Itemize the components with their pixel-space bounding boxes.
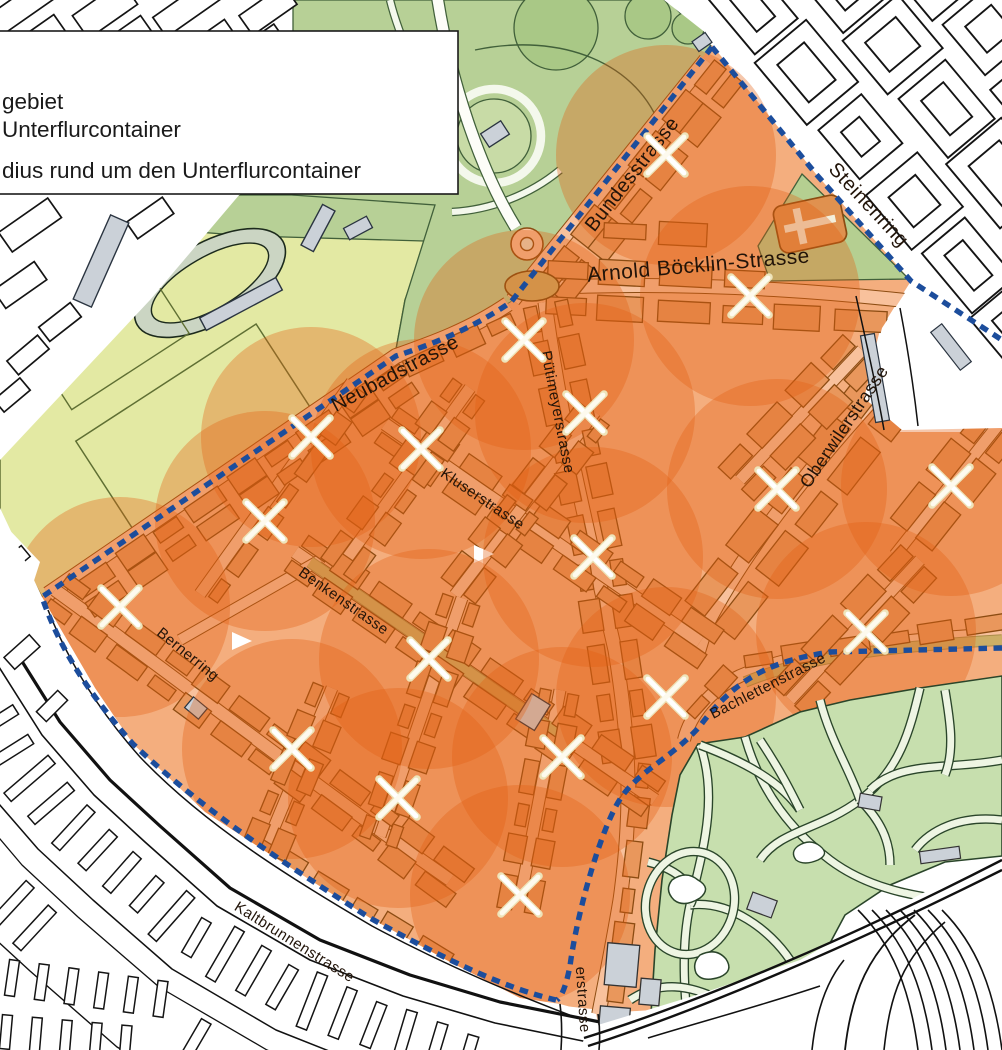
svg-text:gebiet: gebiet [2, 89, 64, 114]
svg-text:Unterflurcontainer: Unterflurcontainer [2, 117, 181, 142]
svg-text:dius rund um den Unterflurcont: dius rund um den Unterflurcontainer [2, 158, 361, 183]
